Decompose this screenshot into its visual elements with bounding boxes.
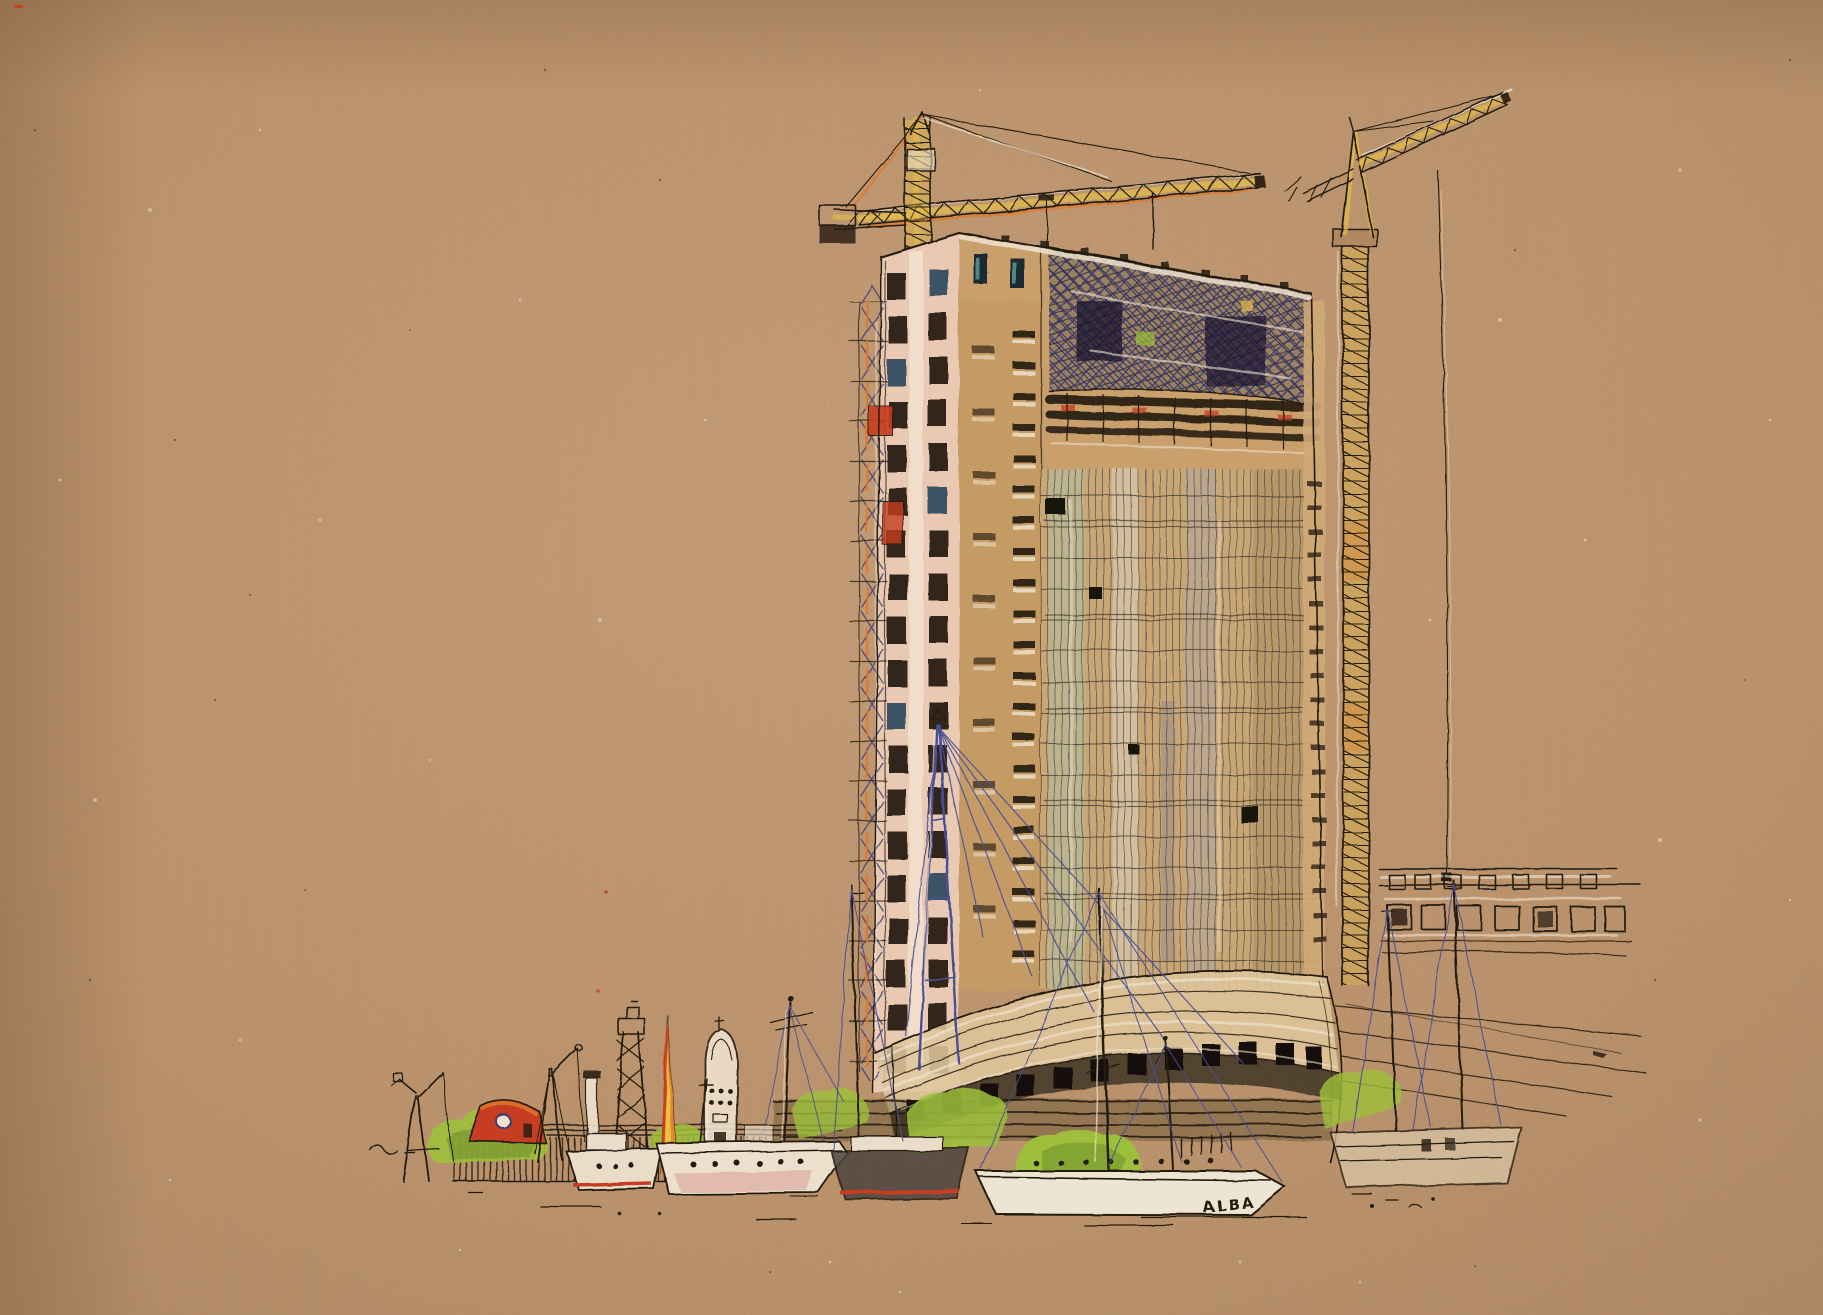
harbor-construction-sketch: ALBA	[0, 0, 1823, 1315]
crane-left-cab	[906, 148, 934, 170]
life-ring	[496, 1114, 510, 1128]
hoist-cage	[868, 405, 892, 435]
glass-curtain-wall	[1040, 468, 1322, 988]
corner-band	[958, 240, 1040, 990]
crane-left-trolley	[1038, 194, 1054, 200]
artwork-canvas: ALBA	[0, 0, 1823, 1315]
crane-left-mast	[904, 118, 934, 254]
crane-left-counterweight	[818, 224, 854, 242]
right-pier	[1302, 292, 1326, 985]
building-under-construction	[848, 192, 1326, 1092]
